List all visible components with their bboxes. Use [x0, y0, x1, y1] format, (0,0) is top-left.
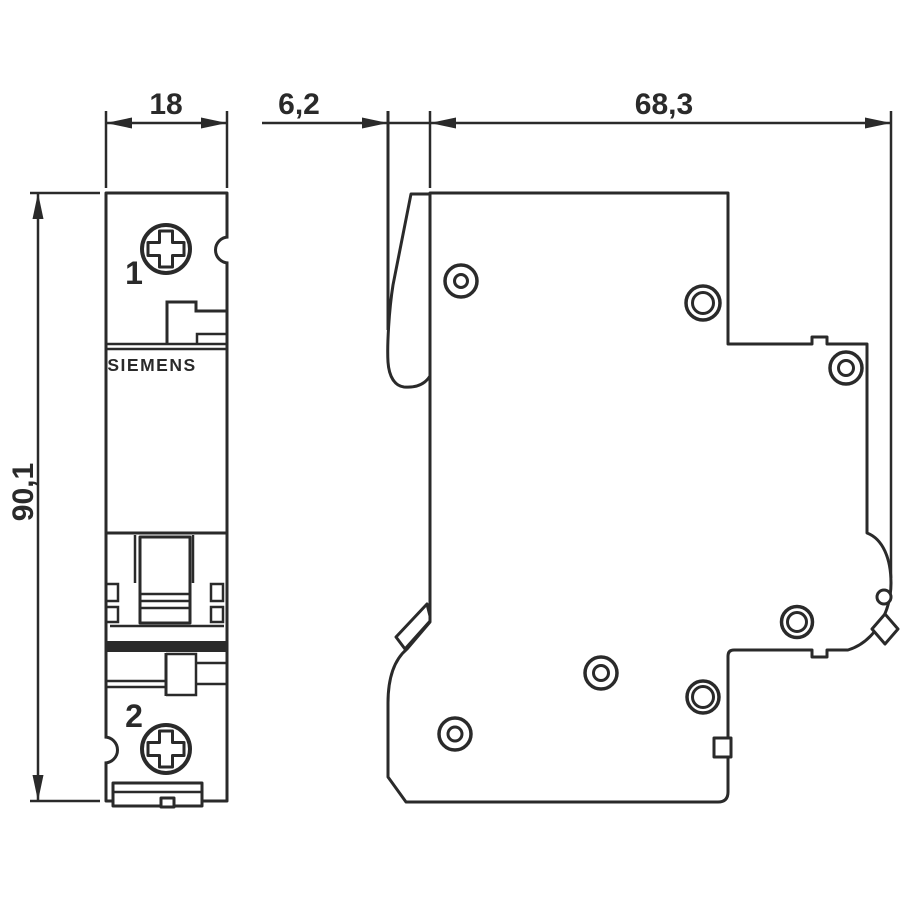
arrowhead-right-icon — [865, 118, 891, 129]
rivet-icon — [830, 352, 862, 384]
phillips-screw-icon — [142, 225, 190, 273]
rivet-icon — [445, 265, 477, 297]
toggle-lever-side — [388, 194, 430, 387]
rivet-icon — [686, 286, 720, 320]
rivet-icon — [439, 718, 471, 750]
front-view: 1 SIEMENS 2 — [105, 193, 229, 807]
technical-drawing-canvas: 1 SIEMENS 2 — [0, 0, 900, 900]
arrowhead-right-icon — [201, 118, 227, 129]
brand-label: SIEMENS — [107, 355, 196, 375]
dimension-handle-projection-value: 6,2 — [278, 88, 320, 121]
terminal-2-label: 2 — [125, 698, 143, 734]
arrowhead-left-icon — [430, 118, 456, 129]
case-separation-band — [106, 641, 227, 652]
edge-tab — [714, 738, 731, 757]
clip-pivot — [877, 590, 891, 604]
arrowhead-up-icon — [33, 193, 44, 219]
foot-tab — [161, 798, 174, 807]
rivet-icon — [782, 607, 813, 638]
phillips-screw-icon — [142, 725, 190, 773]
mounting-foot — [113, 783, 202, 807]
cable-notch — [216, 237, 229, 263]
extension-lines — [30, 193, 100, 801]
arrowhead-right-icon — [362, 118, 388, 129]
dimension-drawing: 1 SIEMENS 2 — [0, 0, 900, 900]
side-view — [388, 193, 898, 802]
rivet-icon — [585, 657, 617, 689]
toggle-handle — [140, 537, 190, 623]
dimension-height-value: 90,1 — [7, 463, 40, 521]
rivet-icon — [687, 681, 719, 713]
arrowhead-left-icon — [106, 118, 132, 129]
dimension-width-value: 18 — [149, 88, 182, 121]
dimension-depth-value: 68,3 — [635, 88, 693, 121]
arrowhead-down-icon — [33, 775, 44, 801]
cable-notch — [105, 737, 118, 763]
dimension-height: 90,1 — [7, 193, 100, 801]
terminal-1-label: 1 — [125, 255, 143, 291]
dimension-width: 18 — [106, 88, 227, 188]
